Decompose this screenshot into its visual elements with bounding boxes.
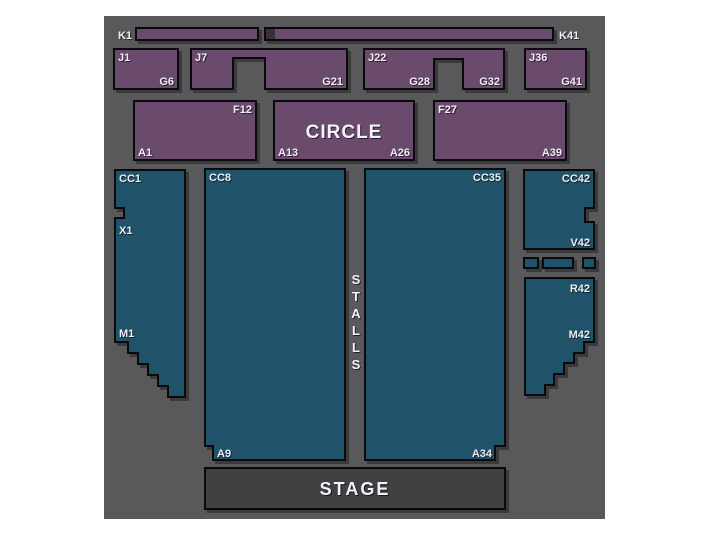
- cc42-label: CC42: [562, 173, 590, 185]
- seat-map-background: K1 K41 J1 G6 J7 G21 J22 G28 G32 J36 G41 …: [104, 16, 605, 519]
- g28-label: G28: [409, 76, 430, 88]
- g32-label: G32: [479, 76, 500, 88]
- circle-row-k-strip-right[interactable]: [265, 28, 553, 40]
- stalls-letter-2: T: [352, 289, 360, 304]
- stage-label: STAGE: [320, 479, 391, 499]
- stalls-block-left-cc1[interactable]: [115, 170, 185, 397]
- stalls-letter-4: L: [352, 323, 360, 338]
- a13-label: A13: [278, 147, 298, 159]
- f27-label: F27: [438, 104, 457, 116]
- a1-label: A1: [138, 147, 152, 159]
- v42-label: V42: [570, 237, 590, 249]
- f12-label: F12: [233, 104, 252, 116]
- stalls-block-center-right-cc35[interactable]: [365, 169, 505, 460]
- g41-label: G41: [561, 76, 582, 88]
- stalls-letter-3: A: [351, 306, 361, 321]
- a26-label: A26: [390, 147, 410, 159]
- j1-label: J1: [118, 52, 130, 64]
- circle-section-title: CIRCLE: [306, 122, 383, 143]
- j36-label: J36: [529, 52, 547, 64]
- stalls-box-strip-2[interactable]: [543, 258, 573, 268]
- j22-label: J22: [368, 52, 386, 64]
- m1-label: M1: [119, 328, 134, 340]
- a34-label: A34: [472, 448, 493, 460]
- k41-label: K41: [559, 30, 579, 42]
- cc1-label: CC1: [119, 173, 141, 185]
- a9-label: A9: [217, 448, 231, 460]
- stalls-letter-5: L: [352, 340, 360, 355]
- stalls-letter-1: S: [352, 272, 361, 287]
- a39-label: A39: [542, 147, 562, 159]
- j7-label: J7: [195, 52, 207, 64]
- stalls-box-strip-1[interactable]: [524, 258, 538, 268]
- m42-label: M42: [569, 329, 590, 341]
- x1-label: X1: [119, 225, 132, 237]
- stalls-section-title: S T A L L S: [351, 272, 361, 372]
- stalls-box-strip-3[interactable]: [583, 258, 595, 268]
- g6-label: G6: [159, 76, 174, 88]
- stalls-block-center-left-cc8[interactable]: [205, 169, 345, 460]
- stalls-letter-6: S: [352, 357, 361, 372]
- k1-label: K1: [118, 30, 132, 42]
- circle-row-k-strip-left[interactable]: [136, 28, 258, 40]
- cc35-label: CC35: [473, 172, 501, 184]
- g21-label: G21: [322, 76, 343, 88]
- seat-map-page: K1 K41 J1 G6 J7 G21 J22 G28 G32 J36 G41 …: [0, 0, 710, 539]
- r42-label: R42: [570, 283, 590, 295]
- cc8-label: CC8: [209, 172, 231, 184]
- circle-row-k-gap-marker: [266, 29, 275, 39]
- seatmap-svg: K1 K41 J1 G6 J7 G21 J22 G28 G32 J36 G41 …: [104, 16, 605, 519]
